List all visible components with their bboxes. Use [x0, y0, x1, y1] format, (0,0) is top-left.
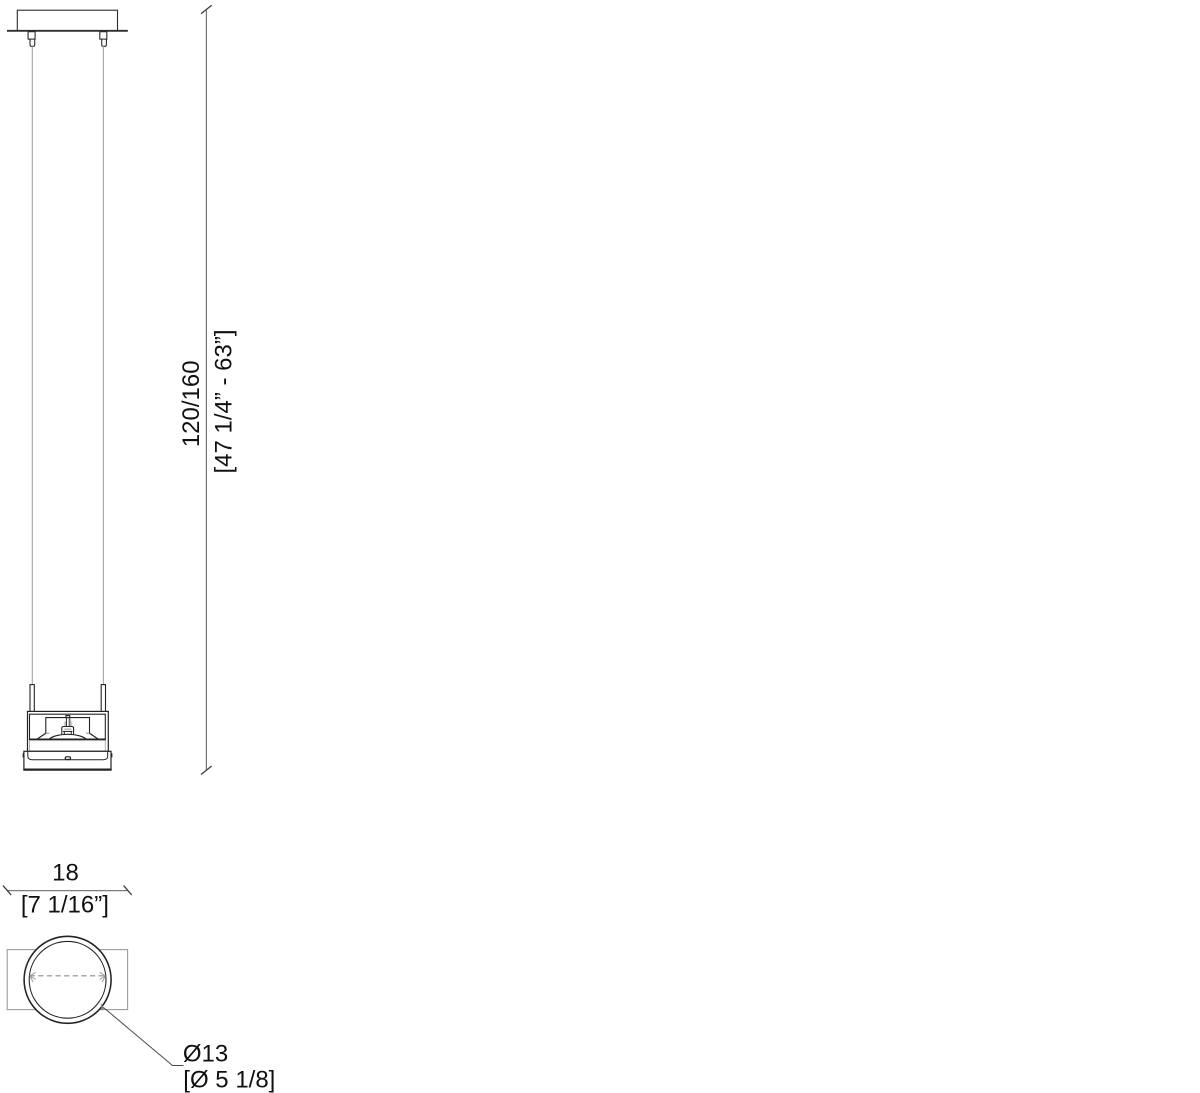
- svg-text:18: 18: [52, 859, 79, 886]
- svg-text:[47 1/4” - 63”]: [47 1/4” - 63”]: [210, 329, 237, 473]
- svg-text:120/160: 120/160: [178, 360, 205, 447]
- svg-text:Ø13: Ø13: [183, 1040, 228, 1067]
- svg-text:[Ø 5 1/8]: [Ø 5 1/8]: [183, 1066, 275, 1093]
- svg-text:[7 1/16”]: [7 1/16”]: [21, 891, 109, 918]
